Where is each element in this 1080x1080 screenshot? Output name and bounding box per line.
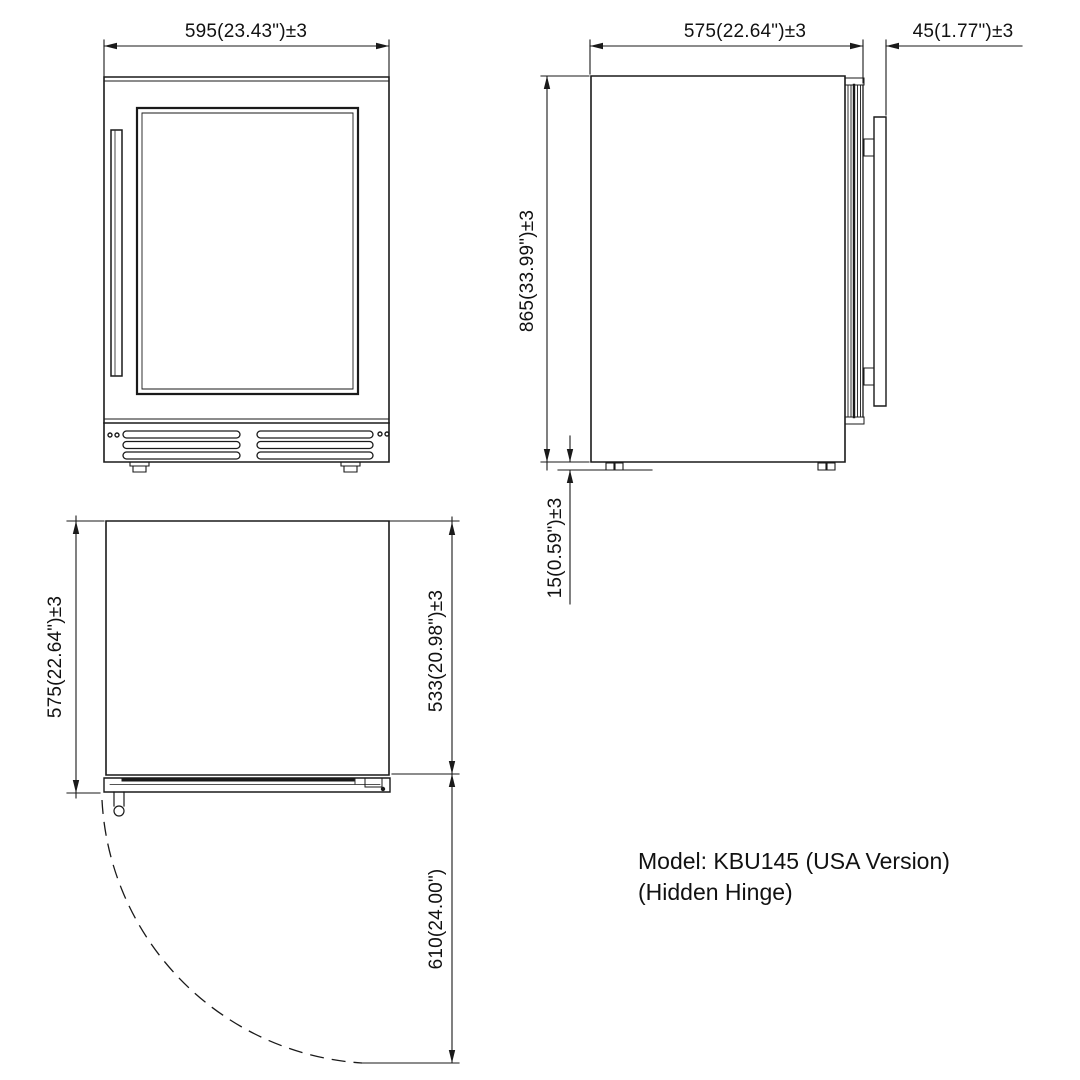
model-caption: Model: KBU145 (USA Version) (Hidden Hing… [638, 846, 950, 908]
side-cabinet-outline [591, 76, 845, 462]
technical-drawing-page: 595(23.43")±3 575(22.64")±3 45(1.77")±3 … [0, 0, 1080, 1080]
dimension-drawing [0, 0, 1080, 1080]
arrowhead [449, 522, 455, 535]
vent-slats-right [257, 431, 373, 459]
top-body-depth-label: 533(20.98")±3 [426, 590, 448, 712]
front-view [104, 40, 389, 472]
side-door-section [845, 78, 864, 424]
arrowhead [544, 449, 550, 462]
front-glass-inner [142, 113, 353, 389]
side-handle-dimension [886, 40, 1022, 115]
arrowhead [449, 774, 455, 787]
side-feet [606, 463, 835, 470]
vent-slats-left [123, 431, 240, 459]
top-door-swing-label: 610(24.00") [426, 869, 448, 970]
front-vent-panel [104, 419, 389, 459]
arrowhead [567, 449, 573, 462]
side-depth-label: 575(22.64")±3 [684, 21, 806, 43]
side-foot-height-label: 15(0.59")±3 [545, 498, 567, 599]
top-door [104, 778, 390, 792]
door-swing-arc [102, 800, 362, 1063]
front-glass-frame [137, 108, 358, 394]
top-depth-label: 575(22.64")±3 [45, 596, 67, 718]
side-door-handle [864, 117, 886, 406]
arrowhead [567, 470, 573, 483]
arrowhead [376, 43, 389, 49]
top-view [67, 516, 459, 1063]
arrowhead [590, 43, 603, 49]
side-view [541, 40, 1022, 604]
vent-screws [108, 432, 389, 437]
arrowhead [449, 761, 455, 774]
front-door-handle [111, 130, 122, 376]
top-depth-dimension [67, 516, 104, 798]
top-hinge-plate [365, 778, 382, 787]
front-width-dimension [104, 40, 389, 76]
model-caption-line2: (Hidden Hinge) [638, 877, 950, 908]
arrowhead [544, 76, 550, 89]
arrowhead [73, 780, 79, 793]
side-handle-depth-label: 45(1.77")±3 [913, 21, 1014, 43]
side-height-label: 865(33.99")±3 [517, 210, 539, 332]
top-cabinet-outline [106, 521, 389, 775]
front-cabinet-outline [104, 77, 389, 462]
arrowhead [850, 43, 863, 49]
model-caption-line1: Model: KBU145 (USA Version) [638, 846, 950, 877]
front-feet [130, 462, 360, 472]
arrowhead [104, 43, 117, 49]
front-width-label: 595(23.43")±3 [185, 21, 307, 43]
hinge-pivot-dot [381, 787, 385, 791]
side-height-dimension [541, 76, 589, 470]
arrowhead [73, 521, 79, 534]
arrowhead [886, 43, 899, 49]
top-door-handle [114, 792, 124, 816]
arrowhead [449, 1050, 455, 1063]
